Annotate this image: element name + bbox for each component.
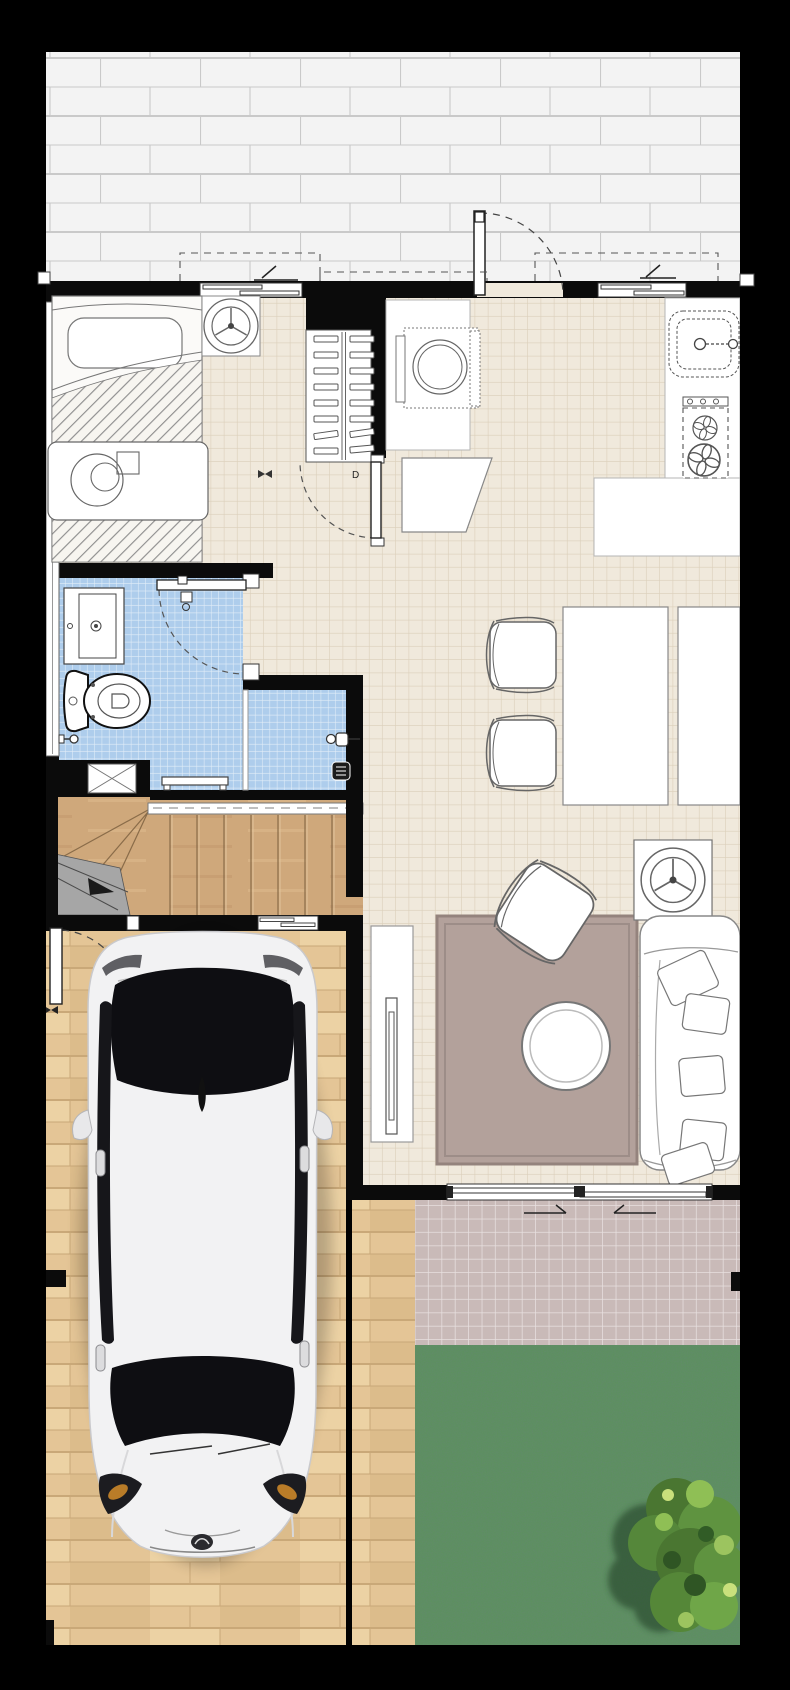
burner-large-icon — [688, 444, 721, 477]
bedroom-fan-stand — [202, 296, 260, 356]
door-marker-label: D — [352, 470, 359, 481]
car — [73, 932, 333, 1567]
stove-hob — [683, 397, 728, 478]
garage-back-window — [258, 916, 318, 930]
entrance-door-leaf — [474, 211, 485, 295]
floor-plan-svg: D — [0, 0, 790, 1690]
door-handle — [96, 1150, 105, 1176]
wall-shower-right — [346, 675, 363, 897]
driveway-strip-floor — [352, 1200, 415, 1645]
table-fan-icon — [204, 299, 258, 353]
dining-chair-1 — [487, 617, 557, 692]
terrace-floor — [415, 1198, 740, 1345]
shower-glass-partition — [243, 690, 248, 790]
rear-window — [111, 968, 295, 1095]
garage-corner-stub — [46, 1620, 54, 1645]
faucet-icon — [695, 339, 706, 350]
gate-post-right — [731, 1272, 740, 1291]
wall-garage-living-divider — [346, 916, 363, 1187]
windshield — [110, 1356, 295, 1446]
pedestal-fan-icon — [641, 848, 705, 912]
coffee-table — [522, 1002, 610, 1090]
door-handle — [300, 1146, 309, 1172]
door-handle — [300, 1341, 309, 1367]
sofa-cushion — [682, 993, 731, 1035]
bathroom-door-leaf — [157, 580, 246, 590]
dining-table — [563, 607, 668, 805]
overbed-table — [48, 442, 208, 520]
bed — [52, 296, 202, 562]
washing-machine — [396, 328, 480, 408]
burner-small-icon — [693, 416, 718, 441]
dining-bench — [678, 607, 740, 805]
door-handle — [96, 1345, 105, 1371]
vanity-sink — [64, 588, 124, 664]
kitchen-sink — [669, 311, 739, 377]
kitchen-street-window — [598, 283, 686, 297]
fan-side-table — [634, 840, 712, 920]
wall-living-bottom-right — [712, 1185, 740, 1200]
dining-chair-2 — [487, 715, 557, 790]
patio-wall-cap-right — [740, 274, 754, 286]
wall-end-cap — [127, 916, 139, 930]
gate-post-left — [46, 1270, 66, 1287]
tv-sideboard — [371, 926, 413, 1142]
sofa-cushion — [678, 1055, 725, 1097]
garage-door-leaf — [50, 928, 62, 1004]
hall-door-leaf — [371, 462, 381, 538]
toilet — [64, 671, 150, 731]
wall-bathroom-top — [46, 563, 273, 578]
wall-living-bottom-left — [346, 1185, 447, 1200]
kitchen-l-counter — [594, 478, 740, 556]
wall-under-shower — [150, 790, 363, 800]
tv — [386, 998, 397, 1134]
floor-drain — [332, 762, 350, 780]
pillow — [68, 318, 182, 368]
front-patio-floor — [46, 52, 740, 282]
patio-wall-cap-left — [38, 272, 50, 284]
wardrobe-closet — [306, 330, 374, 462]
sofa — [640, 916, 740, 1187]
floor-plan: D — [0, 0, 790, 1690]
brand-logo — [191, 1534, 213, 1550]
bedroom-street-window — [200, 283, 302, 297]
